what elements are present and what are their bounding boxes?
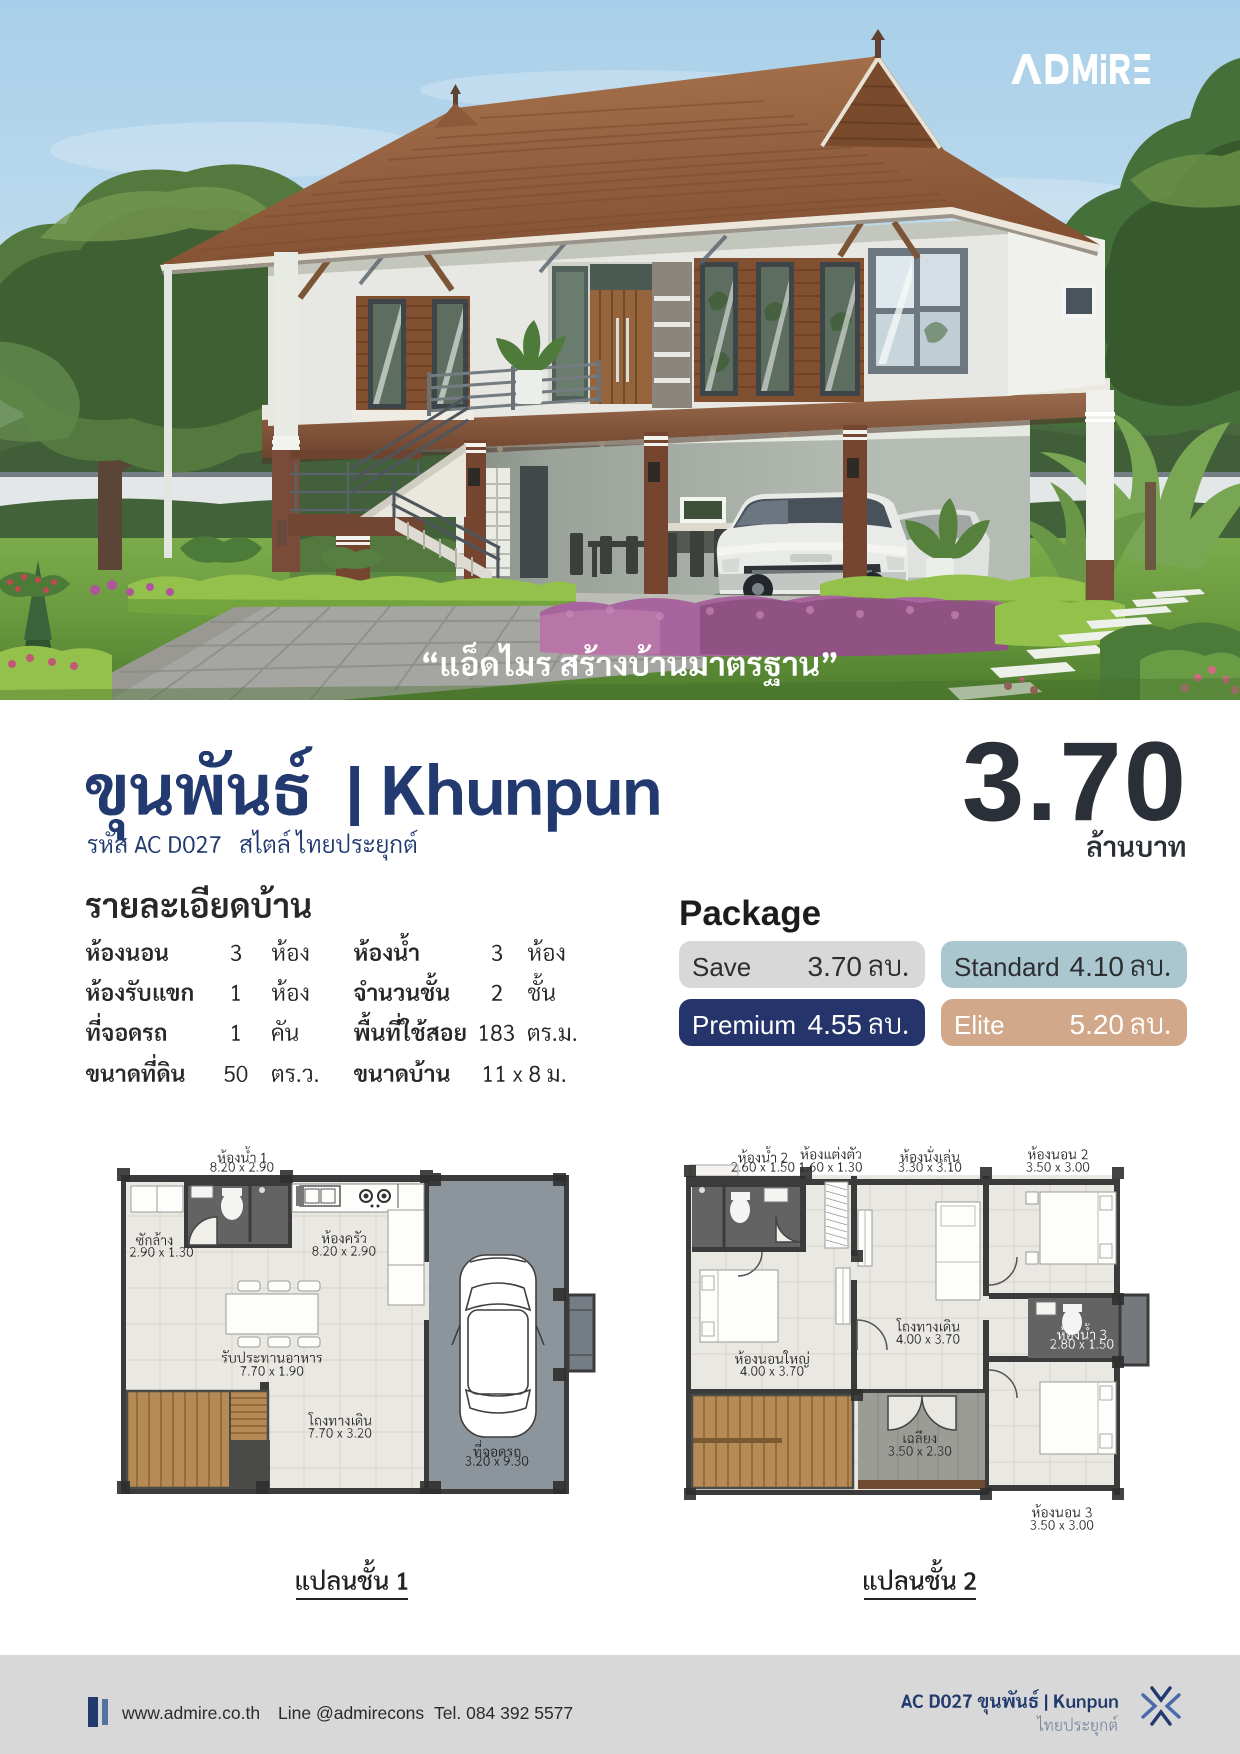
- svg-text:Elite: Elite: [954, 1010, 1005, 1040]
- svg-text:Line @admirecons: Line @admirecons: [278, 1703, 424, 1723]
- svg-text:3.70: 3.70: [808, 951, 863, 982]
- svg-text:4.10: 4.10: [1070, 951, 1125, 982]
- svg-text:Package: Package: [679, 894, 821, 933]
- svg-text:Premium: Premium: [692, 1010, 796, 1040]
- svg-text:3.70: 3.70: [962, 719, 1188, 844]
- svg-text:Save: Save: [692, 952, 751, 982]
- svg-text:5.20: 5.20: [1070, 1009, 1125, 1040]
- svg-text:Tel. 084 392 5577: Tel. 084 392 5577: [434, 1703, 573, 1723]
- svg-text:4.55: 4.55: [808, 1009, 863, 1040]
- svg-text:www.admire.co.th: www.admire.co.th: [121, 1703, 260, 1723]
- svg-text:Standard: Standard: [954, 952, 1060, 982]
